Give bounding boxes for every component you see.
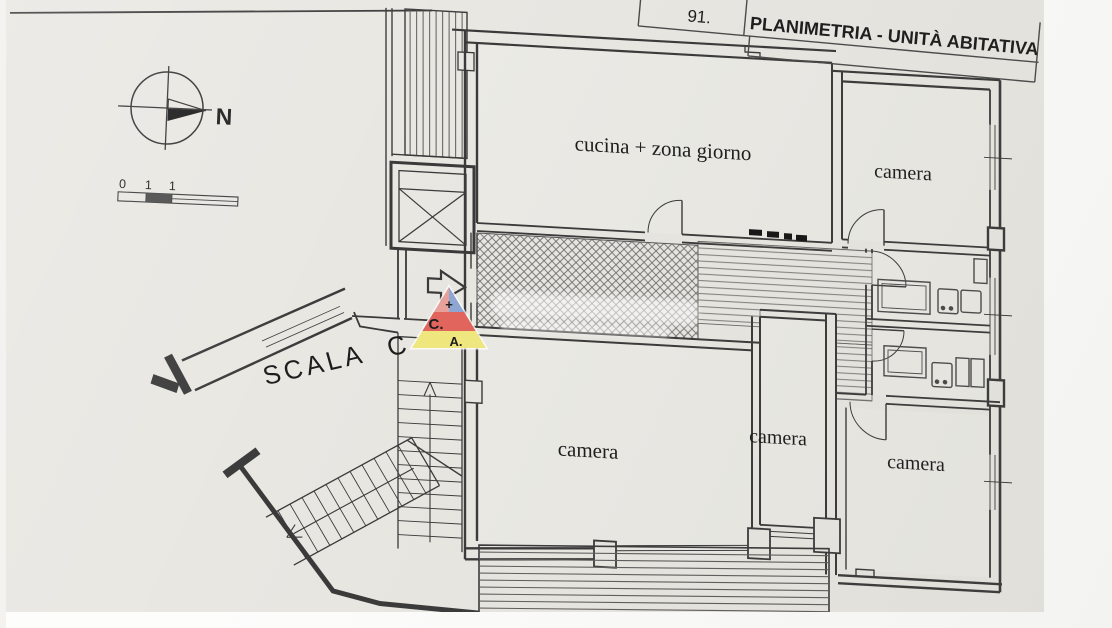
wall-joint-upper (988, 228, 1004, 251)
bedroom-mid-floor (760, 317, 826, 529)
logo-letter-c: C. (429, 316, 444, 333)
top-boundary-line (10, 0, 432, 36)
stairs-right-flight (398, 333, 462, 553)
vestibule-walls (352, 246, 406, 319)
room-label-bedroom-right: camera (887, 451, 945, 476)
floorplan-svg: cucina + zona giorno camera camera camer… (0, 0, 1112, 628)
title-block-title: PLANIMETRIA - UNITÀ ABITATIVA (749, 12, 1039, 59)
scale-bar-filled-segment (146, 193, 172, 203)
stair-landing-line (407, 440, 462, 476)
scale-tick-1: 1 (145, 178, 153, 192)
stair-up-arrow-2 (283, 462, 417, 544)
logo-plus-glyph: + (445, 297, 453, 312)
photo-edge-right (1044, 0, 1112, 628)
photo-edge-bottom (0, 612, 1112, 628)
title-block-code: 91. (687, 6, 712, 27)
elevator-x (399, 189, 466, 246)
room-label-bedroom-mid: camera (749, 425, 807, 450)
north-label: N (215, 103, 233, 130)
stairwell-label: SCALA C (259, 328, 413, 391)
walkway (152, 278, 352, 402)
photo-edge-left (0, 0, 6, 628)
elevator (391, 162, 474, 253)
entry-hall-hatch (477, 233, 698, 339)
bedroom-right-floor (846, 408, 990, 578)
floorplan-photo: cucina + zona giorno camera camera camer… (0, 0, 1112, 628)
watermark-logo: + C. A. (412, 287, 486, 349)
scale-tick-2: 1 (169, 179, 177, 193)
room-label-bedroom-left: camera (558, 436, 619, 463)
scale-tick-0: 0 (119, 177, 127, 191)
stair-wall-stub (225, 449, 258, 477)
logo-letter-a: A. (450, 334, 463, 349)
plan-linework: cucina + zona giorno camera camera camer… (10, 0, 1012, 628)
stairs-left-flight (266, 438, 440, 565)
scale-bar: 0 1 1 (118, 177, 239, 206)
compass: N (116, 64, 234, 153)
room-label-bedroom-tr: camera (874, 160, 932, 185)
